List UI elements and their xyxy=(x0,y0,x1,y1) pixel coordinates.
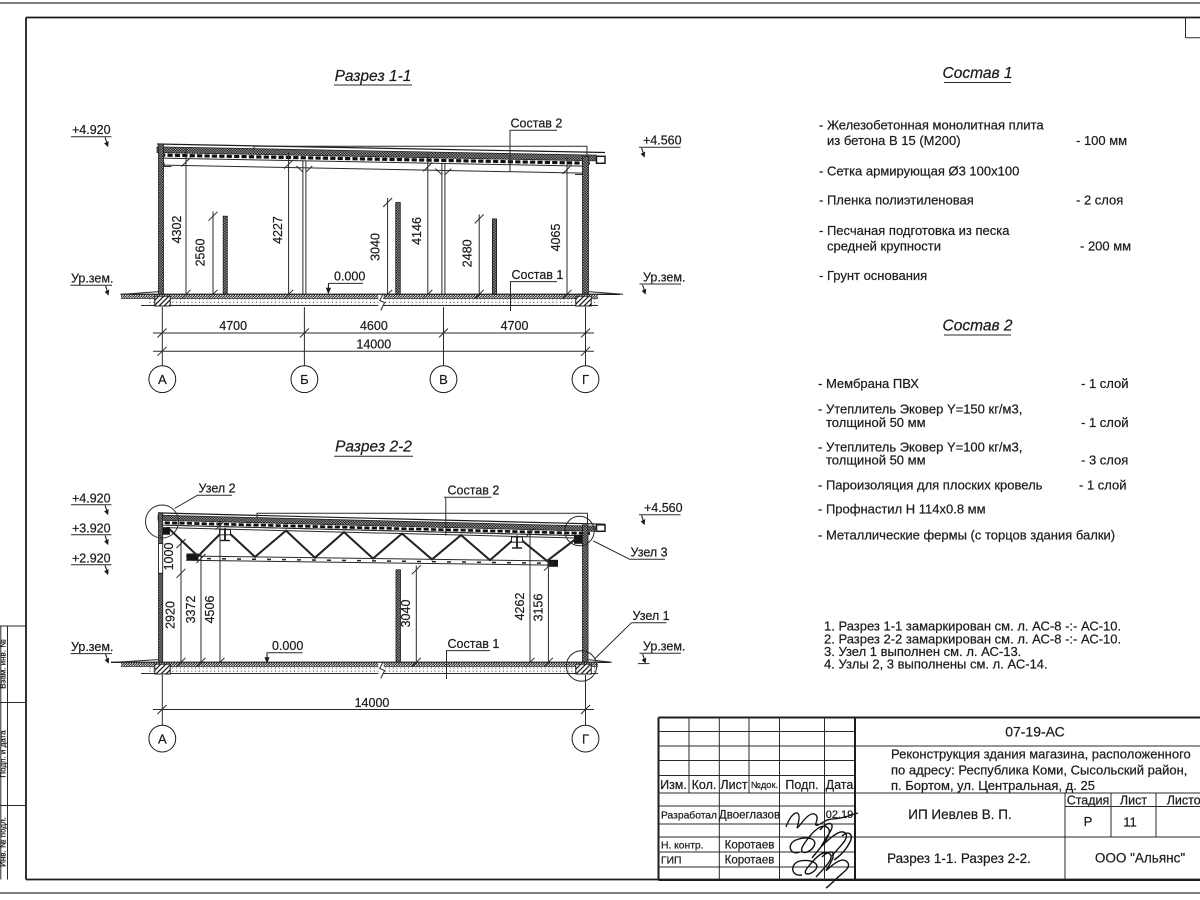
svg-text:- 1 слой: - 1 слой xyxy=(1079,478,1127,493)
svg-text:Разрез 2-2: Разрез 2-2 xyxy=(335,439,412,456)
svg-text:Г: Г xyxy=(582,731,589,746)
svg-text:0.000: 0.000 xyxy=(334,270,365,284)
svg-text:Состав 1: Состав 1 xyxy=(943,65,1013,82)
svg-text:В: В xyxy=(439,372,448,387)
svg-text:- Мембрана ПВХ: - Мембрана ПВХ xyxy=(818,376,919,391)
svg-text:Состав 2: Состав 2 xyxy=(943,318,1013,335)
svg-text:3156: 3156 xyxy=(531,594,545,622)
svg-text:3040: 3040 xyxy=(399,600,413,628)
svg-text:4. Узлы 2, 3 выполнены см. л.: 4. Узлы 2, 3 выполнены см. л. АС-14. xyxy=(824,657,1048,672)
svg-text:- Железобетонная монолитная п: - Железобетонная монолитная плита xyxy=(819,118,1044,133)
svg-text:4146: 4146 xyxy=(410,217,424,245)
svg-text:Г: Г xyxy=(582,372,589,387)
svg-text:Коротаев: Коротаев xyxy=(725,840,775,852)
svg-text:4227: 4227 xyxy=(271,216,285,244)
svg-text:из бетона В 15 (М200): из бетона В 15 (М200) xyxy=(827,133,961,148)
svg-text:Состав 1: Состав 1 xyxy=(512,268,564,282)
svg-text:ГИП: ГИП xyxy=(661,856,681,867)
svg-text:- Профнастил Н 114х0.8 мм: - Профнастил Н 114х0.8 мм xyxy=(818,502,986,517)
svg-text:0.000: 0.000 xyxy=(272,639,303,653)
svg-text:Двоеглазов: Двоеглазов xyxy=(719,810,780,822)
svg-text:средней крупности: средней крупности xyxy=(827,239,941,254)
svg-text:Реконструкция здания магазина,: Реконструкция здания магазина, расположе… xyxy=(891,747,1191,762)
svg-text:Разрез 1-1: Разрез 1-1 xyxy=(335,68,412,85)
svg-text:А: А xyxy=(158,372,167,387)
svg-text:Листов: Листов xyxy=(1167,794,1200,808)
svg-text:1000: 1000 xyxy=(162,543,176,571)
svg-text:Взам. инв. №: Взам. инв. № xyxy=(0,639,8,689)
svg-text:+4.560: +4.560 xyxy=(643,134,682,148)
svg-text:- Пленка полиэтиленовая: - Пленка полиэтиленовая xyxy=(819,193,974,208)
svg-text:2560: 2560 xyxy=(194,239,208,267)
svg-text:11: 11 xyxy=(1123,815,1137,830)
svg-text:по адресу: Республика Коми, Сы: по адресу: Республика Коми, Сысольский р… xyxy=(891,763,1187,778)
svg-text:Ур.зем.: Ур.зем. xyxy=(71,271,113,285)
svg-text:- 1 слой: - 1 слой xyxy=(1081,415,1129,430)
svg-text:- Сетка армирующая Ø3 100х100: - Сетка армирующая Ø3 100х100 xyxy=(819,164,1019,179)
svg-text:Р: Р xyxy=(1084,814,1093,829)
svg-text:- 100 мм: - 100 мм xyxy=(1076,133,1127,148)
svg-text:+2.920: +2.920 xyxy=(72,551,111,565)
svg-text:- Песчаная подготовка из песка: - Песчаная подготовка из песка xyxy=(819,223,1010,238)
svg-text:- 1 слой: - 1 слой xyxy=(1081,376,1129,391)
svg-text:4600: 4600 xyxy=(360,319,388,333)
svg-text:14000: 14000 xyxy=(355,696,390,710)
svg-text:- Металлические фермы (с торцо: - Металлические фермы (с торцов здания б… xyxy=(818,528,1115,543)
svg-text:Состав 2: Состав 2 xyxy=(448,484,500,498)
svg-text:Б: Б xyxy=(300,372,309,387)
svg-text:- 3 слоя: - 3 слоя xyxy=(1081,453,1128,468)
svg-text:Узел 2: Узел 2 xyxy=(199,482,236,496)
svg-text:Ур.зем.: Ур.зем. xyxy=(71,640,113,654)
svg-text:п. Бортом, ул. Центральная, д.: п. Бортом, ул. Центральная, д. 25 xyxy=(891,778,1095,793)
svg-text:Подп. и дата: Подп. и дата xyxy=(0,730,8,778)
svg-text:Ур.зем.: Ур.зем. xyxy=(643,640,685,654)
svg-text:Ур.зем.: Ур.зем. xyxy=(643,270,685,284)
svg-text:3372: 3372 xyxy=(184,596,198,624)
svg-text:4506: 4506 xyxy=(203,596,217,624)
svg-text:+4.920: +4.920 xyxy=(72,491,111,505)
svg-text:Дата: Дата xyxy=(826,778,854,792)
svg-text:+4.920: +4.920 xyxy=(72,123,111,137)
svg-text:толщиной 50 мм: толщиной 50 мм xyxy=(826,453,926,468)
svg-text:- 2 слоя: - 2 слоя xyxy=(1076,193,1123,208)
svg-text:Состав 1: Состав 1 xyxy=(448,637,500,651)
svg-text:Стадия: Стадия xyxy=(1067,794,1110,808)
svg-text:Кол.: Кол. xyxy=(692,778,717,792)
svg-text:4700: 4700 xyxy=(219,319,247,333)
svg-text:2920: 2920 xyxy=(164,601,178,629)
svg-text:+3.920: +3.920 xyxy=(72,521,111,535)
svg-text:Разработал: Разработал xyxy=(661,810,717,822)
svg-text:Разрез 1-1. Разрез 2-2.: Разрез 1-1. Разрез 2-2. xyxy=(887,851,1031,866)
svg-text:- Грунт основания: - Грунт основания xyxy=(819,268,927,283)
svg-text:2480: 2480 xyxy=(461,239,475,267)
svg-text:+4.560: +4.560 xyxy=(644,501,683,515)
svg-text:Лист: Лист xyxy=(1120,794,1147,808)
svg-text:- Пароизоляция для плоских кро: - Пароизоляция для плоских кровель xyxy=(818,478,1043,493)
svg-text:ООО "Альянс": ООО "Альянс" xyxy=(1095,851,1185,866)
svg-text:4262: 4262 xyxy=(513,593,527,621)
svg-text:Узел 3: Узел 3 xyxy=(631,546,668,560)
svg-text:4700: 4700 xyxy=(501,319,529,333)
svg-text:Изм.: Изм. xyxy=(660,778,687,792)
svg-text:толщиной 50 мм: толщиной 50 мм xyxy=(826,415,926,430)
svg-text:№док.: №док. xyxy=(751,780,778,790)
svg-text:Коротаев: Коротаев xyxy=(725,855,775,867)
svg-text:А: А xyxy=(158,731,167,746)
svg-text:Инв. № подл.: Инв. № подл. xyxy=(0,817,8,867)
svg-text:Лист: Лист xyxy=(720,778,747,792)
svg-text:3040: 3040 xyxy=(368,233,382,261)
svg-text:Н. контр.: Н. контр. xyxy=(661,841,704,852)
svg-text:4065: 4065 xyxy=(549,224,563,252)
svg-text:4302: 4302 xyxy=(170,216,184,244)
svg-text:Узел 1: Узел 1 xyxy=(633,609,670,623)
svg-text:- 200 мм: - 200 мм xyxy=(1080,239,1131,254)
svg-text:14000: 14000 xyxy=(356,338,391,352)
svg-text:Состав 2: Состав 2 xyxy=(511,117,563,131)
svg-text:07-19-АС: 07-19-АС xyxy=(1005,724,1065,740)
svg-text:Подп.: Подп. xyxy=(785,778,818,792)
svg-text:ИП Иевлев В. П.: ИП Иевлев В. П. xyxy=(908,807,1012,822)
